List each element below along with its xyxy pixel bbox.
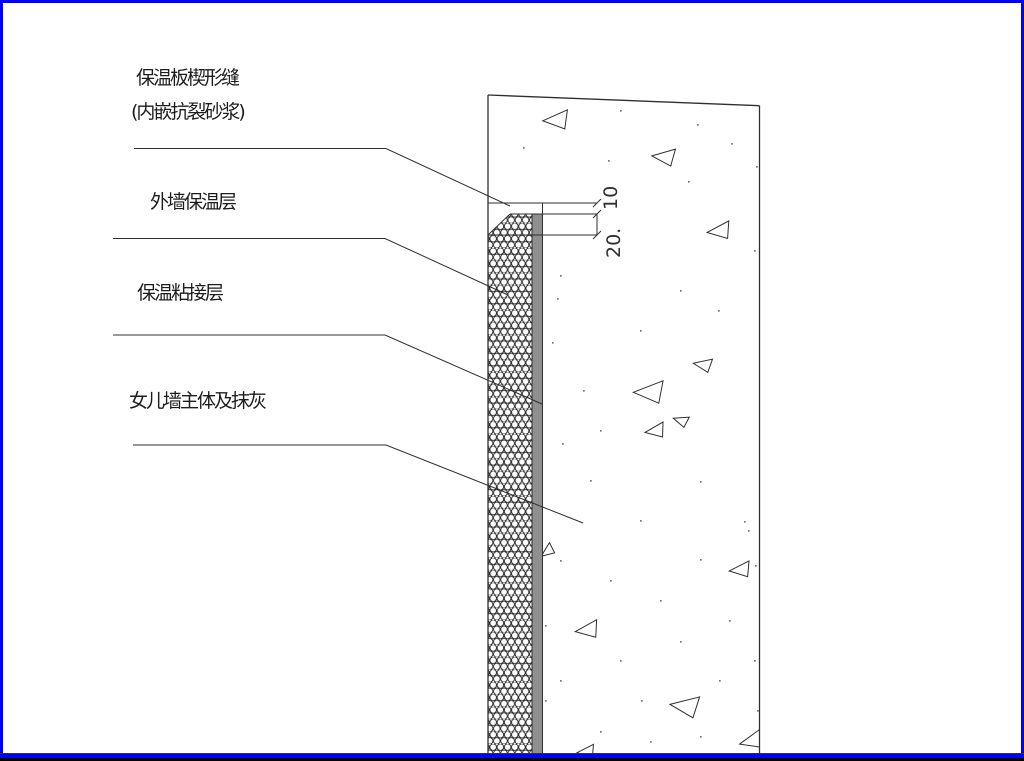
frame-bottom-black-bar	[0, 758, 1024, 761]
concrete-speck	[600, 430, 602, 432]
dimension-10: 10	[600, 186, 622, 210]
frame-left-border	[0, 0, 3, 757]
concrete-speck	[545, 700, 547, 702]
concrete-speck	[583, 390, 585, 392]
label-adhesive-layer: 保温粘接层	[137, 282, 223, 304]
concrete-speck	[620, 660, 622, 662]
cad-drawing-page: 10 20. 保温板楔形缝 (内嵌抗裂砂浆) 外墙保温层 保温粘接层 女儿墙主体…	[0, 0, 1024, 761]
concrete-speck	[640, 330, 642, 332]
concrete-speck	[680, 290, 682, 292]
parapet-insulation-detail-drawing: 10 20. 保温板楔形缝 (内嵌抗裂砂浆) 外墙保温层 保温粘接层 女儿墙主体…	[0, 0, 1024, 761]
aggregate-triangle	[633, 379, 663, 403]
concrete-speck	[650, 741, 652, 743]
concrete-speck	[757, 710, 759, 712]
concrete-speck	[608, 160, 610, 162]
concrete-speck	[719, 680, 721, 682]
label-wedge-seam-line1: 保温板楔形缝	[136, 67, 240, 89]
aggregate-triangle	[574, 620, 598, 639]
concrete-speck	[560, 560, 562, 562]
concrete-speck	[523, 147, 525, 149]
aggregate-triangle	[543, 110, 568, 129]
label-parapet-body: 女儿墙主体及抹灰	[129, 390, 266, 412]
concrete-speck	[557, 298, 559, 300]
label-exterior-insulation: 外墙保温层	[150, 191, 236, 213]
concrete-speck	[562, 443, 564, 445]
concrete-speck	[590, 480, 592, 482]
concrete-speck	[641, 700, 643, 702]
concrete-speck	[610, 580, 612, 582]
label-wedge-seam-line2: (内嵌抗裂砂浆)	[131, 101, 244, 123]
dimension-20: 20.	[603, 228, 625, 258]
concrete-speck	[688, 181, 690, 183]
concrete-speck	[700, 736, 702, 738]
concrete-speck	[744, 521, 746, 523]
concrete-speck	[552, 342, 554, 344]
aggregate-triangle	[644, 422, 664, 439]
aggregate-triangle	[729, 561, 750, 578]
aggregate-triangle	[651, 146, 676, 166]
concrete-speck	[620, 110, 622, 112]
concrete-speck	[600, 731, 602, 733]
concrete-speck	[680, 641, 682, 643]
concrete-speck	[754, 250, 756, 252]
concrete-texture	[523, 110, 763, 758]
adhesive-layer-strip	[533, 214, 543, 754]
concrete-speck	[697, 124, 699, 126]
insulation-hatch-area	[488, 214, 532, 754]
concrete-speck	[640, 520, 642, 522]
concrete-speck	[754, 660, 756, 662]
frame-top-border	[0, 0, 1024, 3]
concrete-speck	[545, 625, 547, 627]
aggregate-triangle	[706, 221, 730, 240]
concrete-speck	[718, 310, 720, 312]
concrete-speck	[731, 143, 733, 145]
concrete-speck	[700, 481, 702, 483]
concrete-speck	[660, 600, 662, 602]
concrete-speck	[748, 530, 750, 532]
aggregate-triangle	[668, 692, 699, 718]
aggregate-triangle	[692, 355, 712, 372]
concrete-speck	[560, 275, 562, 277]
concrete-speck	[756, 166, 758, 168]
concrete-speck	[729, 620, 731, 622]
aggregate-triangle	[672, 412, 690, 428]
concrete-speck	[700, 559, 702, 561]
concrete-speck	[755, 565, 757, 567]
concrete-speck	[560, 680, 562, 682]
